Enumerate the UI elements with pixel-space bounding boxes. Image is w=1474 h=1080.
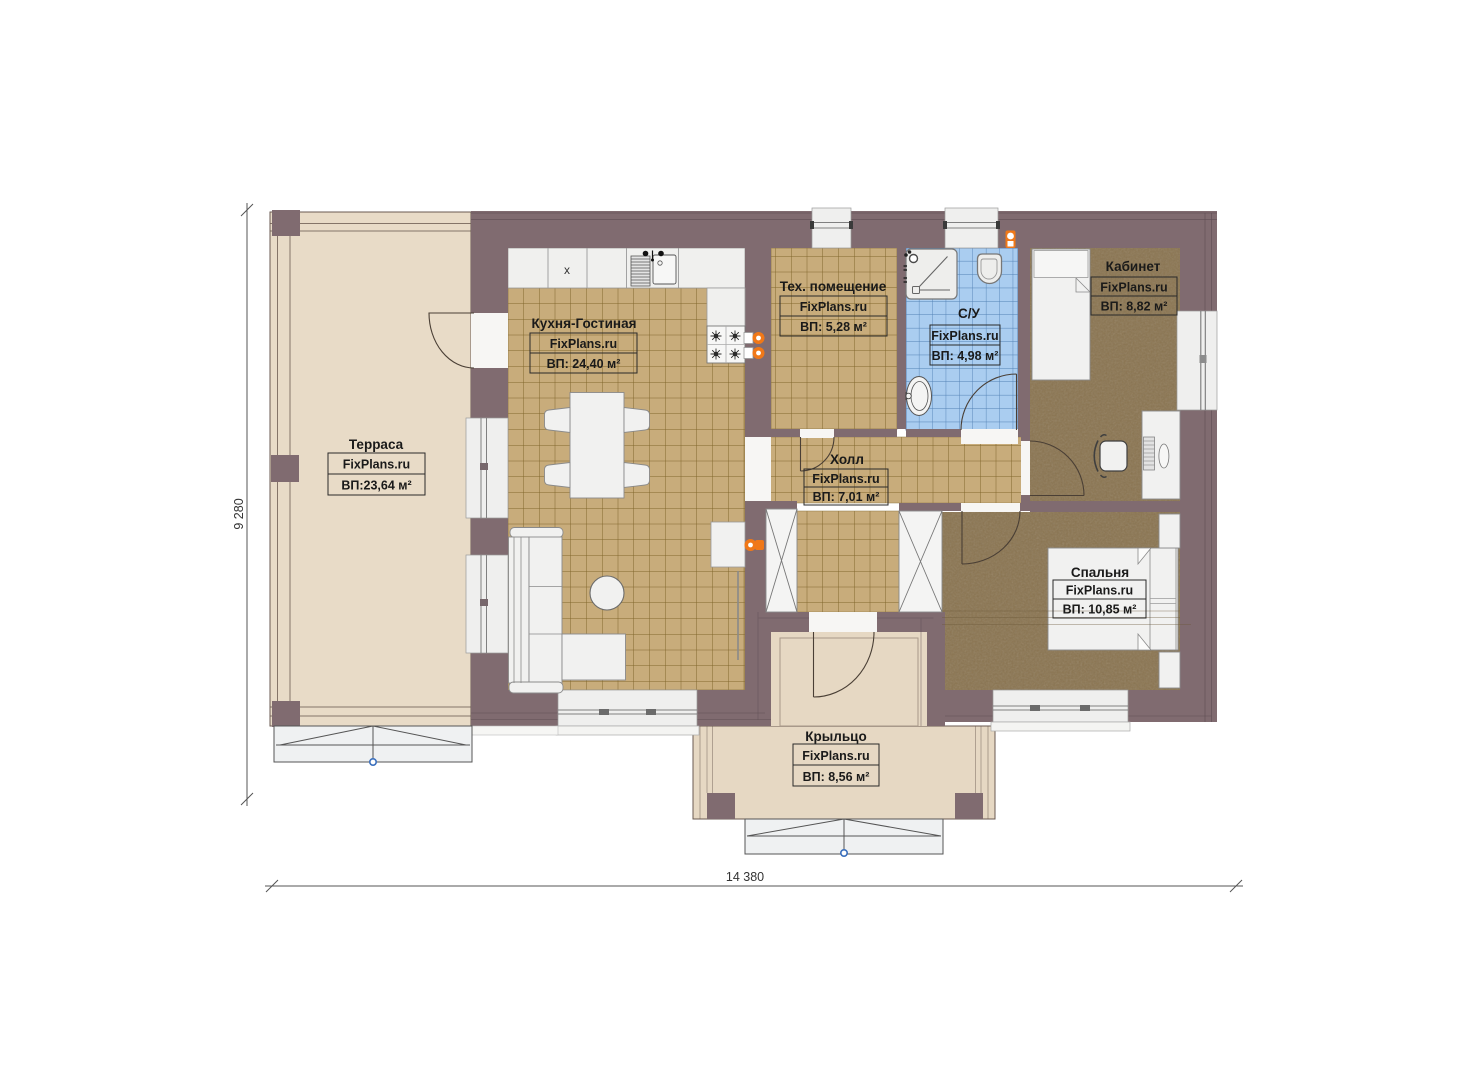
svg-text:FixPlans.ru: FixPlans.ru <box>343 458 410 472</box>
svg-text:ВП: 7,01 м²: ВП: 7,01 м² <box>813 490 880 504</box>
svg-text:ВП:23,64 м²: ВП:23,64 м² <box>341 479 411 493</box>
svg-text:ВП: 5,28 м²: ВП: 5,28 м² <box>800 320 867 334</box>
svg-text:FixPlans.ru: FixPlans.ru <box>931 329 998 343</box>
svg-text:Спальня: Спальня <box>1071 565 1129 580</box>
svg-text:ВП: 4,98 м²: ВП: 4,98 м² <box>932 349 999 363</box>
svg-text:FixPlans.ru: FixPlans.ru <box>1100 281 1167 295</box>
svg-text:Крыльцо: Крыльцо <box>805 729 866 744</box>
svg-text:14 380: 14 380 <box>726 870 764 884</box>
svg-text:FixPlans.ru: FixPlans.ru <box>800 300 867 314</box>
svg-text:Терраса: Терраса <box>349 437 404 452</box>
svg-text:ВП: 24,40 м²: ВП: 24,40 м² <box>547 357 621 371</box>
svg-text:ВП: 8,56 м²: ВП: 8,56 м² <box>803 770 870 784</box>
svg-text:ВП: 8,82 м²: ВП: 8,82 м² <box>1101 300 1168 314</box>
svg-text:FixPlans.ru: FixPlans.ru <box>812 472 879 486</box>
svg-text:ВП: 10,85 м²: ВП: 10,85 м² <box>1063 603 1137 617</box>
svg-text:С/У: С/У <box>958 306 981 321</box>
svg-text:9 280: 9 280 <box>232 498 246 529</box>
svg-text:Кухня-Гостиная: Кухня-Гостиная <box>532 316 637 331</box>
svg-text:Холл: Холл <box>830 452 864 467</box>
svg-text:Тех. помещение: Тех. помещение <box>780 279 887 294</box>
svg-text:FixPlans.ru: FixPlans.ru <box>1066 584 1133 598</box>
svg-text:FixPlans.ru: FixPlans.ru <box>802 749 869 763</box>
svg-text:FixPlans.ru: FixPlans.ru <box>550 337 617 351</box>
svg-text:x: x <box>564 263 570 277</box>
svg-text:Кабинет: Кабинет <box>1106 259 1161 274</box>
